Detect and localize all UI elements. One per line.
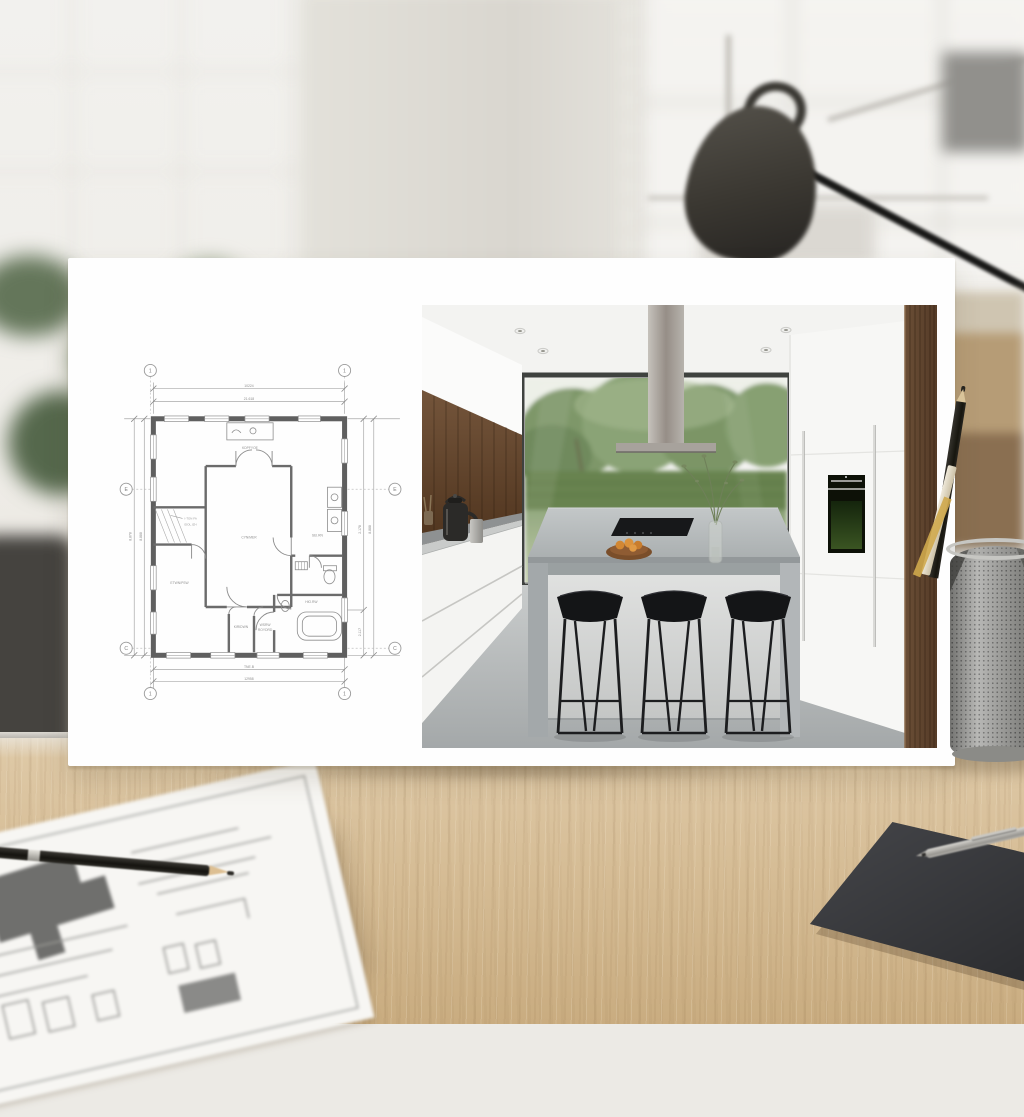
grid-label: 1 bbox=[343, 368, 346, 374]
dim-top-1: 10224 bbox=[244, 384, 254, 388]
cup-base bbox=[952, 746, 1024, 762]
cooktop bbox=[611, 518, 694, 536]
dim-left-2: 8.888 bbox=[139, 532, 143, 541]
island-left-waterfall bbox=[528, 557, 548, 737]
built-in-oven bbox=[828, 475, 865, 553]
grid-label: 1 bbox=[149, 691, 152, 697]
room-label-left: ETWN/PSW bbox=[170, 581, 189, 585]
dim-bottom-1: TNE.B bbox=[244, 665, 255, 669]
callout-line-1: I-TON FA bbox=[185, 516, 197, 520]
room-label-right-mid: SEI.RN bbox=[312, 534, 324, 538]
callout-line-2: EIOL.IZH bbox=[185, 522, 197, 526]
dim-right-3: 2.117 bbox=[358, 628, 362, 636]
room-label-bottom-right-2: ROYDRD bbox=[258, 628, 273, 632]
grid-label: 1 bbox=[343, 691, 346, 697]
island-right-waterfall bbox=[780, 557, 800, 737]
floor-plan-drawing: 10224 21.618 TNE.B 12958 8.878 8.888 2.1… bbox=[98, 358, 410, 706]
pencil-lead bbox=[227, 870, 234, 875]
pencil-silhouette bbox=[1013, 546, 1024, 760]
dim-top-2: 21.618 bbox=[244, 397, 255, 401]
pencil-metal-band bbox=[27, 850, 40, 862]
steel-jug bbox=[470, 519, 483, 543]
dim-right-2: 8.888 bbox=[368, 525, 372, 534]
closet-callout: I-TON FA EIOL.IZH bbox=[170, 515, 196, 526]
room-label-top: KDPFYOE bbox=[242, 446, 259, 450]
room-label-right-low: HIO.RW bbox=[305, 600, 318, 604]
pen-cup bbox=[946, 380, 1024, 780]
mesh-cup-body bbox=[950, 546, 1024, 760]
kitchen-photo bbox=[422, 305, 937, 748]
right-cabinets bbox=[790, 321, 905, 733]
shelf-box bbox=[942, 52, 1024, 152]
scene: { "scene": { "setting": "architect desk … bbox=[0, 0, 1024, 1024]
room-labels: KDPFYOE CYN/MER ETWN/PSW KIRIDWN WSRW RO… bbox=[170, 446, 323, 632]
room-label-bottom-mid: KIRIDWN bbox=[234, 625, 249, 629]
plan-doors bbox=[192, 450, 322, 630]
pencil-silhouette bbox=[950, 546, 973, 760]
grid-label: C bbox=[393, 646, 397, 652]
dim-left-1: 8.878 bbox=[129, 532, 133, 541]
grid-label: 1 bbox=[149, 368, 152, 374]
grid-label: C bbox=[124, 646, 128, 652]
kitchen-render bbox=[422, 305, 937, 748]
presentation-board: 10224 21.618 TNE.B 12958 8.878 8.888 2.1… bbox=[68, 258, 955, 766]
room-label-bottom-right-1: WSRW bbox=[260, 623, 272, 627]
floor-plan: 10224 21.618 TNE.B 12958 8.878 8.888 2.1… bbox=[98, 358, 410, 706]
dim-right-1: 2.178 bbox=[358, 525, 362, 534]
dim-bottom-2: 12958 bbox=[244, 677, 254, 681]
room-label-center: CYN/MER bbox=[241, 536, 257, 540]
